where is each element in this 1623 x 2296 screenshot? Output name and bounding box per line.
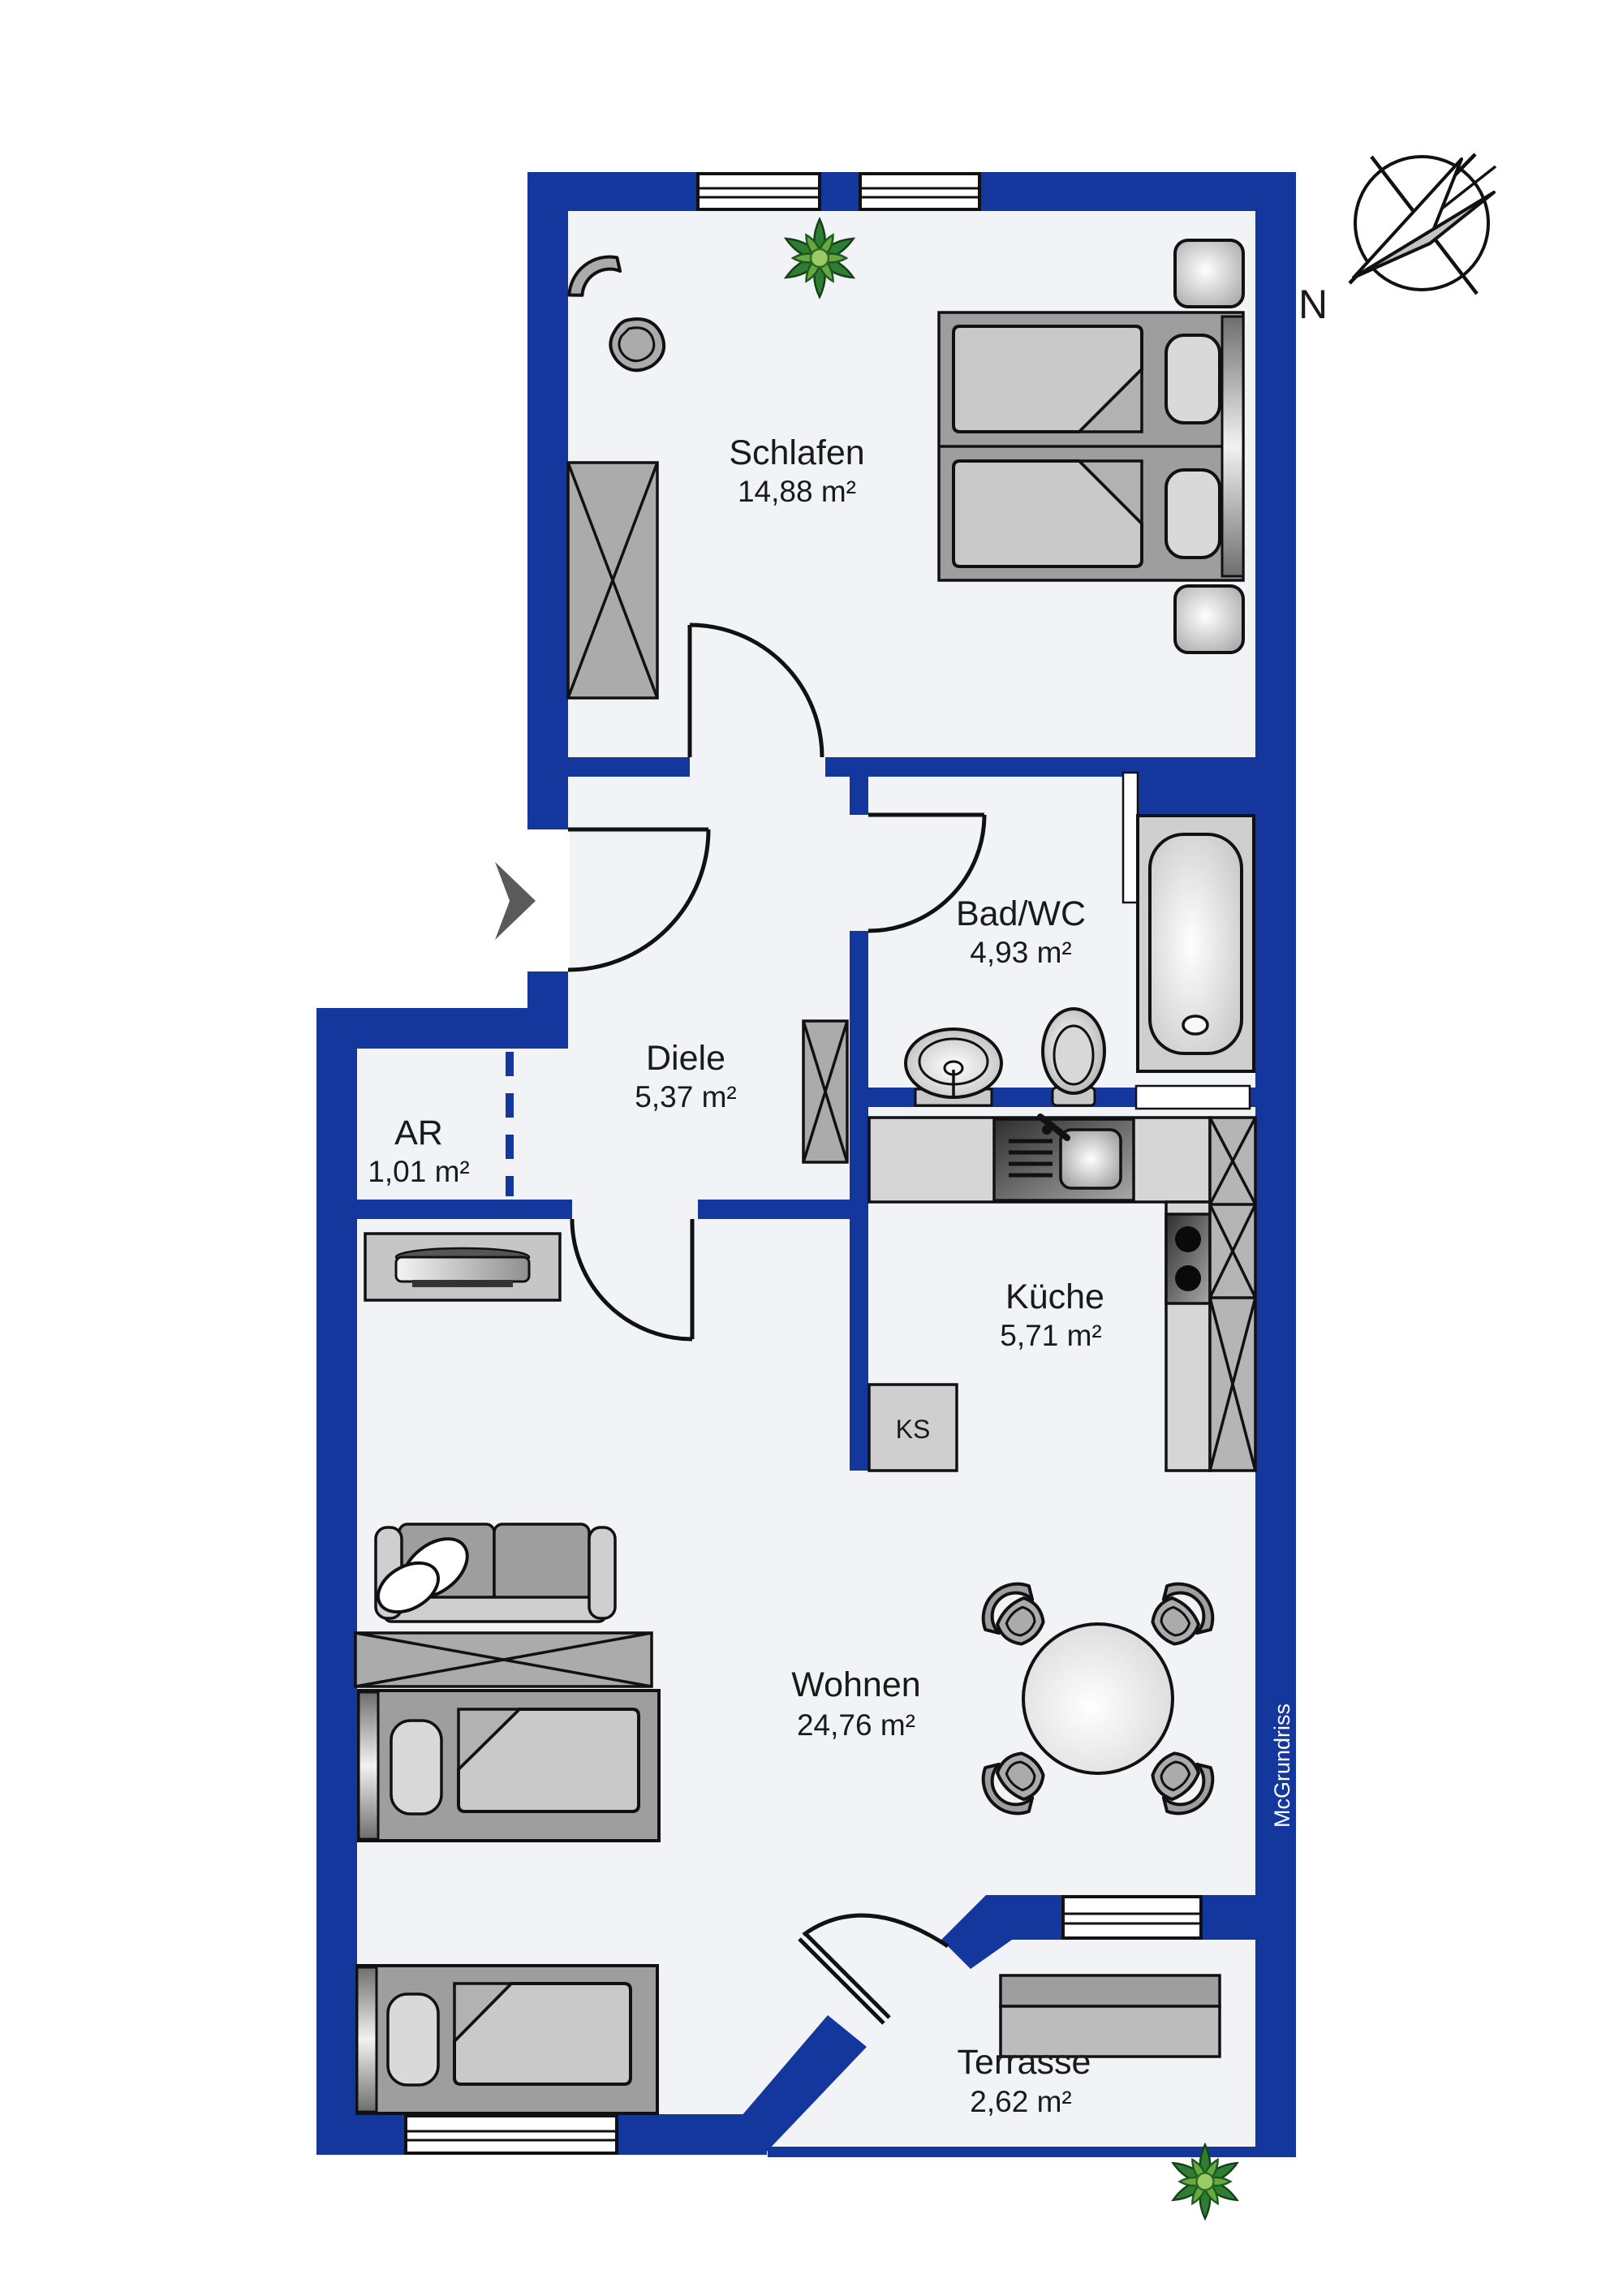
bath-wall-gap (1136, 1086, 1250, 1109)
bath-partition (1123, 773, 1138, 902)
sofa-icon (369, 1524, 615, 1622)
wall-tub-filler (1136, 777, 1255, 816)
wardrobe-icon (568, 463, 657, 698)
room-label-bad: Bad/WC (956, 894, 1086, 933)
fridge-icon: KS (869, 1385, 957, 1471)
window-schlafen-left (698, 174, 820, 209)
wall-bath-kitchen-left (850, 931, 868, 1471)
room-label-schlafen: Schlafen (729, 433, 864, 472)
double-bed-icon (939, 312, 1243, 580)
room-area-wohnen: 24,76 m² (797, 1708, 915, 1742)
wall-schlafen-bottom-left (568, 757, 690, 777)
room-area-bad: 4,93 m² (970, 936, 1071, 969)
room-label-wohnen: Wohnen (791, 1665, 920, 1704)
wall-diele-wohnen-left (357, 1200, 572, 1219)
single-bed-icon (357, 1966, 657, 2113)
wall-bath-left-stub (850, 777, 868, 815)
room-label-kueche: Küche (1005, 1277, 1104, 1316)
sideboard-icon (365, 1234, 560, 1300)
nightstand-icon (1175, 586, 1243, 653)
window-terrasse (1063, 1897, 1201, 1938)
kitchen-sink-icon (994, 1117, 1134, 1200)
stove-icon (1166, 1214, 1210, 1303)
floorplan-page: Schlafen 14,88 m² Bad/WC 4,93 m² (0, 0, 1623, 2296)
room-area-diele: 5,37 m² (635, 1080, 736, 1114)
single-bed-icon (359, 1691, 659, 1841)
room-area-kueche: 5,71 m² (1000, 1319, 1101, 1352)
bathtub-icon (1138, 816, 1254, 1071)
wall-diele-wohnen-right (698, 1200, 850, 1219)
window-schlafen-right (860, 174, 979, 209)
pillow-icon (388, 1994, 438, 2085)
wall-right (1255, 172, 1296, 2157)
lowboard-icon (355, 1633, 652, 1686)
tall-cabinet-icon (1210, 1118, 1255, 1471)
hall-cabinet-icon (803, 1021, 847, 1162)
wall-entry-stub (527, 971, 568, 1008)
compass-icon: N (1298, 154, 1496, 327)
wall-left-upper (527, 172, 568, 829)
pillow-icon (1166, 470, 1220, 558)
pillow-icon (391, 1721, 441, 1814)
sink-icon (906, 1029, 1001, 1105)
room-label-terrasse: Terrasse (958, 2043, 1091, 2082)
room-area-schlafen: 14,88 m² (738, 475, 856, 508)
room-label-diele: Diele (646, 1039, 725, 1078)
wall-left-lower (316, 1008, 357, 2155)
compass-north-label: N (1298, 282, 1328, 327)
wall-terrace-edge (768, 2147, 1296, 2157)
wall-schlafen-bath (825, 757, 1255, 777)
pillow-icon (1166, 335, 1220, 423)
fridge-label: KS (896, 1415, 931, 1444)
room-label-ar: AR (394, 1114, 443, 1152)
window-wohnen-bottom (406, 2116, 617, 2153)
toilet-icon (1043, 1009, 1104, 1105)
room-area-terrasse: 2,62 m² (970, 2085, 1071, 2118)
nightstand-icon (1175, 240, 1243, 307)
watermark-text: McGrundriss (1270, 1704, 1294, 1828)
floorplan-svg: Schlafen 14,88 m² Bad/WC 4,93 m² (0, 0, 1623, 2296)
room-area-ar: 1,01 m² (368, 1155, 469, 1188)
